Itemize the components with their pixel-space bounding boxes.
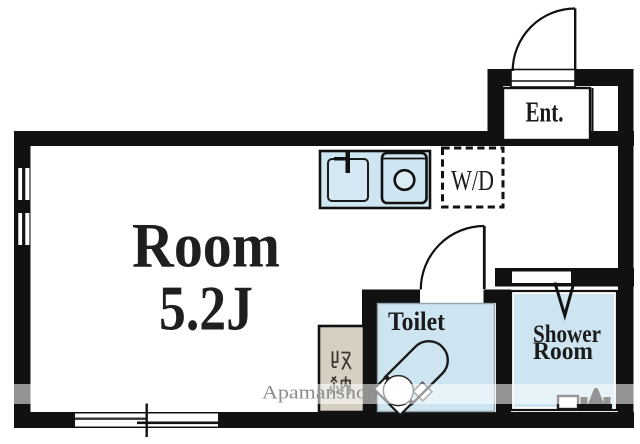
svg-text:Room: Room: [533, 338, 593, 365]
svg-text:Apamanshop: Apamanshop: [262, 383, 378, 404]
svg-text:W/D: W/D: [451, 166, 494, 197]
svg-text:Ent.: Ent.: [526, 98, 564, 129]
svg-text:Room: Room: [132, 211, 280, 281]
svg-text:Toilet: Toilet: [388, 307, 445, 336]
svg-text:5.2J: 5.2J: [159, 274, 253, 344]
